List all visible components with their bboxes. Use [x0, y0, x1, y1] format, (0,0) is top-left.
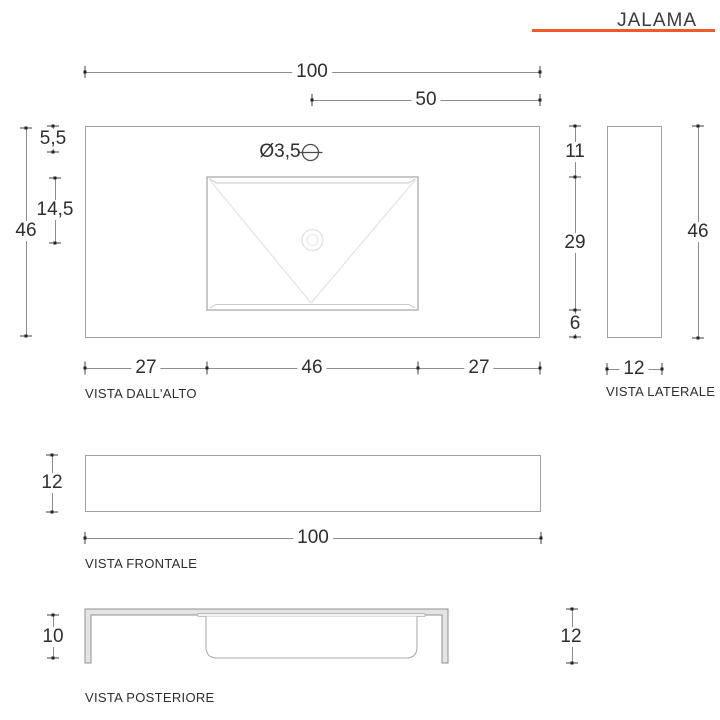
dot [25, 127, 28, 130]
dot [84, 71, 87, 74]
dot [539, 71, 542, 74]
dot [51, 454, 54, 457]
dot [571, 662, 574, 665]
dim-label-total-width: 100 [292, 62, 332, 82]
dot [311, 99, 314, 102]
dot [571, 608, 574, 611]
dim-label-basin-to-edge: 6 [566, 314, 585, 334]
dot [25, 335, 28, 338]
dot [52, 657, 55, 660]
basin-inner-rim-bottom [210, 305, 415, 309]
dot [84, 367, 87, 370]
dot [697, 125, 700, 128]
dot [540, 537, 543, 540]
dot [52, 151, 55, 154]
technical-drawing: JALAMA 100 50 Ø3,5 5,5 14,5 4 [0, 0, 720, 720]
dot [661, 368, 664, 371]
dim-label-hole-diameter: Ø3,5 [255, 142, 304, 162]
dot [574, 176, 577, 179]
accent-rule [532, 29, 715, 32]
top-view-graphic [85, 126, 540, 338]
view-label-side: VISTA LATERALE [606, 384, 715, 399]
dim-label-basin-width: 46 [297, 358, 326, 378]
dim-label-rear-inner-height: 10 [38, 627, 67, 647]
dim-label-edge-to-hole: 5,5 [36, 129, 70, 149]
front-view-outline [85, 455, 541, 512]
dim-label-bottom-left: 27 [131, 358, 160, 378]
dot [606, 368, 609, 371]
dot [54, 177, 57, 180]
dot [574, 125, 577, 128]
basin-inner-rim-top [210, 179, 415, 183]
dim-label-front-height: 12 [37, 473, 66, 493]
dim-label-bottom-right: 27 [464, 358, 493, 378]
dot [206, 367, 209, 370]
dim-label-total-depth: 46 [11, 221, 40, 241]
dim-label-side-width: 12 [619, 359, 648, 379]
basin-slope-lines [209, 179, 416, 303]
dot [574, 309, 577, 312]
dim-label-front-width: 100 [293, 528, 333, 548]
dim-label-top-to-basin: 11 [561, 142, 589, 162]
dot [54, 242, 57, 245]
drain-inner-icon [307, 235, 318, 246]
drain-icon [302, 230, 323, 251]
side-view-outline [607, 126, 662, 338]
rear-view-graphic [80, 605, 580, 670]
basin-outline [207, 177, 418, 310]
rear-basin-lip [198, 614, 425, 617]
dot [51, 511, 54, 514]
dot [697, 337, 700, 340]
dim-label-hole-to-drain: 14,5 [33, 200, 78, 220]
dot [84, 537, 87, 540]
dot [417, 367, 420, 370]
dot [539, 99, 542, 102]
view-label-rear: VISTA POSTERIORE [85, 690, 215, 705]
dim-label-rear-total-height: 12 [556, 627, 585, 647]
dim-label-side-height: 46 [683, 222, 712, 242]
dot [539, 367, 542, 370]
dim-label-basin-depth: 29 [560, 233, 589, 253]
dot [574, 336, 577, 339]
dim-label-hole-offset: 50 [411, 90, 440, 110]
view-label-front: VISTA FRONTALE [85, 556, 197, 571]
dot [52, 614, 55, 617]
rear-basin-bowl [206, 617, 417, 659]
view-label-top: VISTA DALL'ALTO [85, 386, 197, 401]
